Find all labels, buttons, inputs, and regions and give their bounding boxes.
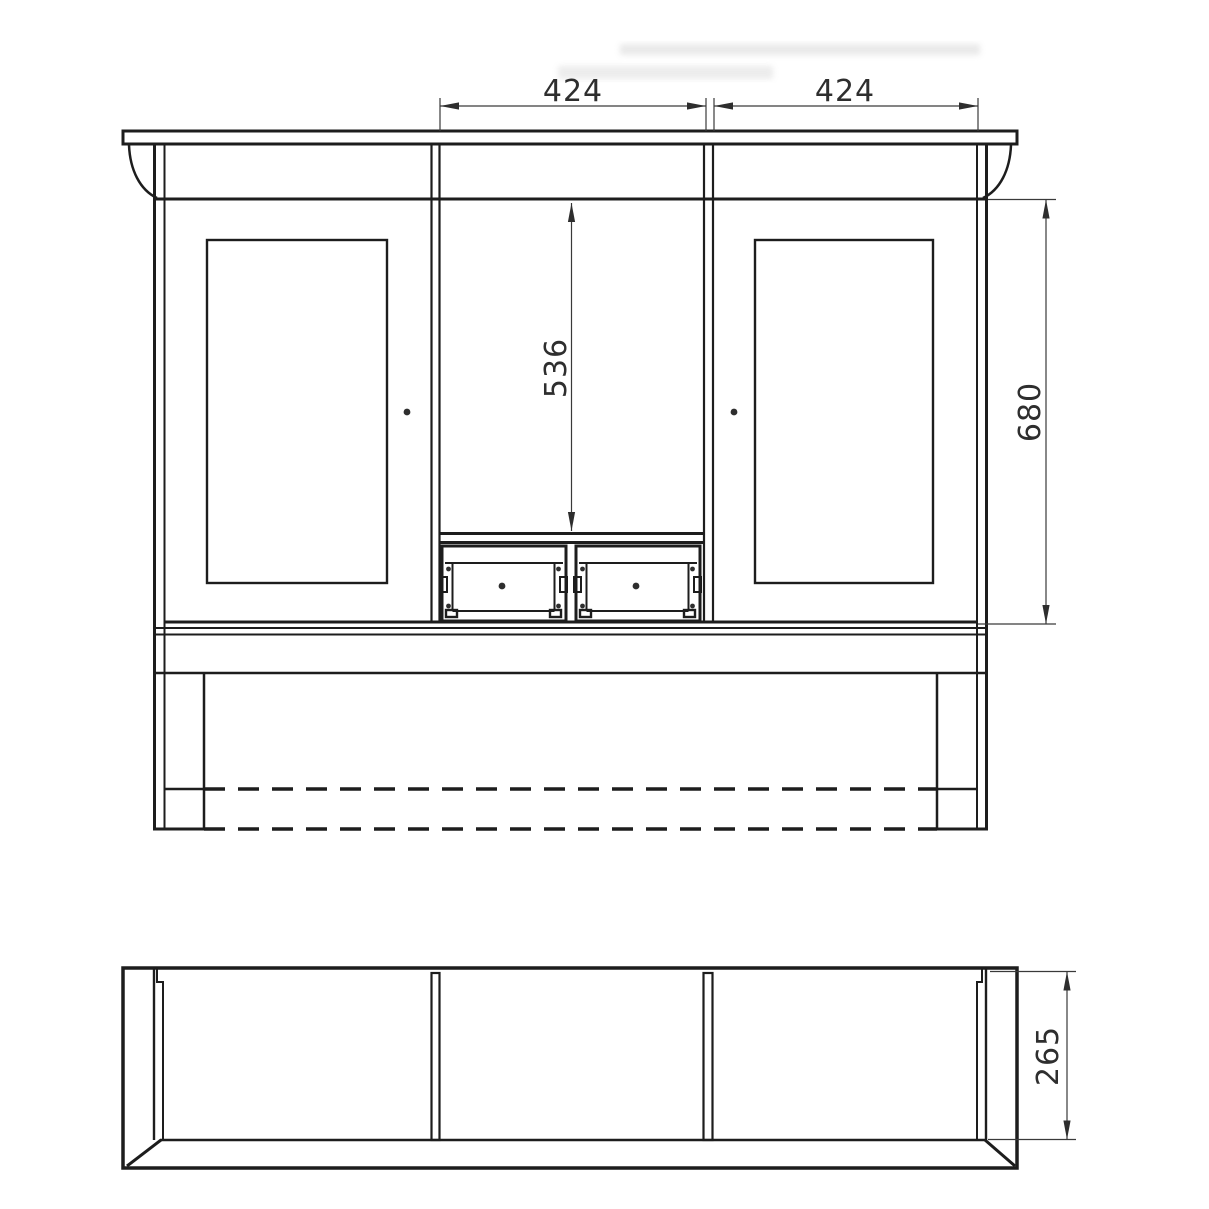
watermark-smudge	[558, 44, 980, 79]
left-door	[207, 240, 410, 583]
dimension-label: 680	[1013, 382, 1048, 442]
arrowhead-left	[440, 102, 459, 109]
hidden-edges	[204, 789, 937, 829]
top-board	[123, 131, 1017, 144]
right-door	[731, 240, 933, 583]
plan-outer-body	[123, 968, 1017, 1168]
screw	[690, 604, 695, 609]
plan-left-side-panel	[154, 969, 163, 1140]
bottom-rails	[154, 622, 987, 673]
arrowhead-top	[568, 203, 575, 222]
arrowhead-top	[1063, 972, 1070, 991]
left-door-knob	[404, 409, 411, 416]
screw	[556, 604, 561, 609]
left-door-panel	[207, 240, 387, 583]
dimension-top-right-width: 424	[714, 74, 978, 131]
dimension-label: 265	[1031, 1026, 1066, 1086]
front-view	[123, 131, 1017, 829]
screw	[446, 604, 451, 609]
right-mullion	[704, 144, 713, 622]
dimension-label: 424	[543, 74, 603, 109]
screw	[446, 567, 451, 572]
center-shelf	[440, 534, 705, 543]
dimension-top-left-width: 424	[440, 74, 706, 131]
arrowhead-bottom	[1042, 605, 1049, 624]
technical-drawing: 424 424 536 680 265	[0, 0, 1209, 1209]
right-side-panel	[977, 144, 987, 829]
screw	[556, 567, 561, 572]
plan-partition-right	[704, 973, 713, 1140]
arrowhead-left	[714, 102, 733, 109]
corner-bracket	[550, 610, 561, 617]
arrowhead-bottom	[568, 512, 575, 531]
corner-bracket	[580, 610, 591, 617]
dimension-depth: 265	[988, 972, 1076, 1140]
screw	[580, 567, 585, 572]
corner-bracket	[446, 610, 457, 617]
screw	[690, 567, 695, 572]
left-drawer	[440, 546, 567, 621]
corner-bracket	[684, 610, 695, 617]
screw	[580, 604, 585, 609]
left-leg	[153, 673, 204, 829]
dimension-label: 536	[539, 338, 574, 398]
plan-partition-left	[432, 973, 440, 1140]
left-drawer-knob	[499, 583, 506, 590]
arrowhead-right	[959, 102, 978, 109]
drawing-canvas: 424 424 536 680 265	[0, 0, 1209, 1209]
plan-right-side-panel	[977, 969, 986, 1140]
right-door-knob	[731, 409, 738, 416]
left-corbel	[129, 145, 157, 198]
left-mullion	[432, 144, 440, 622]
left-side-panel	[155, 144, 165, 829]
right-drawer	[574, 546, 701, 621]
right-leg	[937, 673, 988, 829]
plan-mitre-left	[127, 1140, 161, 1166]
arrowhead-top	[1042, 200, 1049, 219]
arrowhead-bottom	[1063, 1121, 1070, 1140]
dimension-side-height: 680	[978, 200, 1056, 625]
arrowhead-right	[687, 102, 706, 109]
right-door-panel	[755, 240, 933, 583]
plan-view	[123, 968, 1017, 1168]
dimension-center-opening-height: 536	[539, 203, 575, 531]
plan-mitre-right	[985, 1140, 1015, 1166]
right-drawer-knob	[633, 583, 640, 590]
dimension-label: 424	[815, 74, 875, 109]
